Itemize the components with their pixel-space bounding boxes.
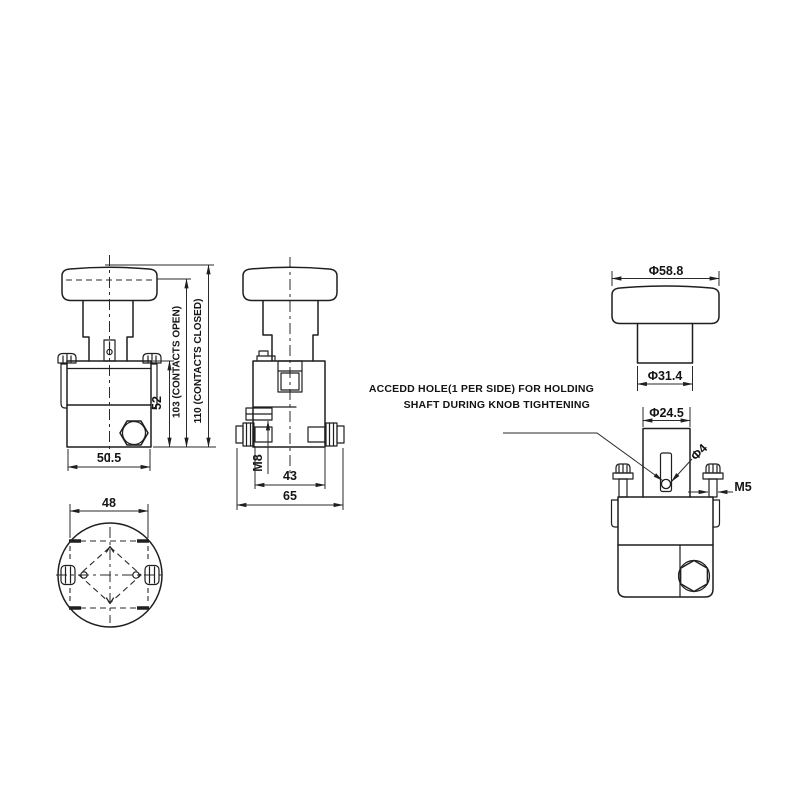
right-knob [612, 286, 719, 324]
dim-contacts-open: 103 (CONTACTS OPEN) [172, 306, 183, 418]
side-view: M8 43 65 [236, 257, 344, 510]
right-body-left-tab [612, 500, 619, 527]
technical-drawing-page: 50.5 52 103 (CONTACTS OPEN) 110 (CONTACT… [0, 0, 800, 800]
body-dimensions: Φ24.5 Φ4 M5 [643, 406, 752, 494]
right-nut-circle [679, 561, 710, 592]
dim-front-width: 50.5 [97, 451, 121, 465]
switch-drawing-svg: 50.5 52 103 (CONTACTS OPEN) 110 (CONTACT… [0, 0, 800, 800]
front-nut-circle [123, 422, 146, 445]
hole-dia-leader [672, 459, 693, 482]
dim-knob-diameter: Φ58.8 [649, 264, 684, 278]
dim-bottom-width: 48 [102, 496, 116, 510]
dim-contacts-closed: 110 (CONTACTS CLOSED) [193, 299, 204, 424]
dim-shaft-diameter: Φ31.4 [648, 369, 683, 383]
right-knob-shaft [638, 324, 693, 364]
knob-side-view: Φ58.8 Φ31.4 [612, 264, 719, 391]
dim-side-outer-width: 65 [283, 489, 297, 503]
dim-boss-diameter: Φ24.5 [649, 406, 684, 420]
right-hex-nut-icon [681, 561, 708, 592]
front-left-ear [61, 364, 67, 408]
side-right-terminal [308, 423, 344, 446]
access-hole [661, 479, 670, 488]
front-hex-nut-icon [120, 421, 148, 445]
bottom-view: 48 [56, 496, 164, 627]
switch-side-view: Φ24.5 Φ4 M5 [612, 406, 752, 597]
dim-screw-thread: M5 [734, 480, 751, 494]
note-leader-line [503, 433, 663, 481]
dim-side-inner-width: 43 [283, 469, 297, 483]
right-body-right-tab [713, 500, 720, 527]
dim-front-body-height: 52 [150, 396, 164, 410]
dim-terminal-thread: M8 [251, 454, 265, 471]
note-line-1: ACCEDD HOLE(1 PER SIDE) FOR HOLDING [369, 383, 594, 395]
knob-dimensions: Φ58.8 Φ31.4 [612, 264, 719, 391]
left-m5-screw-icon [613, 464, 633, 497]
front-view: 50.5 52 103 (CONTACTS OPEN) 110 (CONTACT… [58, 255, 216, 471]
front-shaft [83, 301, 133, 361]
side-body [253, 361, 325, 447]
side-left-terminal [236, 423, 272, 446]
right-body [618, 497, 713, 597]
note-line-2: SHAFT DURING KNOB TIGHTENING [404, 399, 590, 411]
